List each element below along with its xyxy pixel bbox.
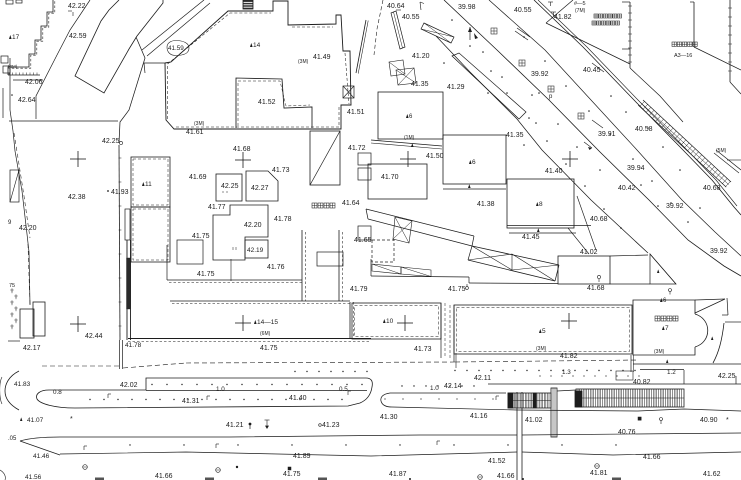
svg-text:42.20: 42.20 xyxy=(244,222,262,229)
svg-text:42.44: 42.44 xyxy=(85,333,103,340)
svg-text:0.8: 0.8 xyxy=(53,389,62,396)
svg-text:41.30: 41.30 xyxy=(380,414,398,421)
svg-text:40.64: 40.64 xyxy=(387,3,405,10)
svg-text:41.38: 41.38 xyxy=(477,201,495,208)
svg-text:42.11: 42.11 xyxy=(474,375,491,382)
svg-text:41.66: 41.66 xyxy=(643,454,661,461)
svg-text:*: * xyxy=(70,416,73,423)
svg-text:40.45: 40.45 xyxy=(583,67,601,74)
svg-text:41.07: 41.07 xyxy=(27,417,44,424)
svg-text:41.72: 41.72 xyxy=(348,145,366,152)
svg-text:41.65: 41.65 xyxy=(354,237,372,244)
svg-text:41.21: 41.21 xyxy=(226,422,244,429)
svg-text:42.27: 42.27 xyxy=(251,185,269,192)
svg-text:(3M): (3M) xyxy=(536,346,547,352)
svg-text:41.16: 41.16 xyxy=(470,413,488,420)
svg-text:41.51: 41.51 xyxy=(347,109,365,116)
svg-text:41.83: 41.83 xyxy=(14,381,31,388)
svg-text:42.17: 42.17 xyxy=(23,345,41,352)
svg-text:41.31: 41.31 xyxy=(182,398,200,405)
svg-text:40.58: 40.58 xyxy=(635,126,653,133)
svg-text:41.20: 41.20 xyxy=(412,53,430,60)
svg-text:41.75: 41.75 xyxy=(448,286,466,293)
svg-text:40.42: 40.42 xyxy=(618,185,636,192)
svg-text:40.82: 40.82 xyxy=(633,379,651,386)
svg-text:1.2: 1.2 xyxy=(667,369,676,376)
svg-text:41.35: 41.35 xyxy=(411,81,429,88)
svg-text:42.06: 42.06 xyxy=(25,79,43,86)
svg-text:1.0: 1.0 xyxy=(430,385,439,392)
svg-text:#—5: #—5 xyxy=(574,1,586,7)
svg-text:75: 75 xyxy=(9,283,15,289)
svg-text:*: * xyxy=(726,417,729,424)
svg-text:39.92: 39.92 xyxy=(710,248,728,255)
svg-text:40.68: 40.68 xyxy=(703,185,721,192)
svg-text:41.75: 41.75 xyxy=(260,345,278,352)
svg-text:41.02: 41.02 xyxy=(580,249,598,256)
svg-text:.05: .05 xyxy=(8,436,17,442)
svg-text:41.40: 41.40 xyxy=(289,395,307,402)
svg-text:41.62: 41.62 xyxy=(703,471,721,478)
svg-text:42.02: 42.02 xyxy=(120,382,138,389)
svg-text:41.82: 41.82 xyxy=(554,14,572,21)
svg-text:42.14: 42.14 xyxy=(444,383,462,390)
svg-text:5: 5 xyxy=(542,328,546,335)
svg-text:41.69: 41.69 xyxy=(189,174,207,181)
svg-text:41.89: 41.89 xyxy=(293,453,311,460)
svg-text:41.59: 41.59 xyxy=(168,45,184,52)
svg-text:41.66: 41.66 xyxy=(497,473,515,480)
svg-text:41.46: 41.46 xyxy=(33,453,50,460)
svg-text:42.19: 42.19 xyxy=(247,247,264,254)
svg-text:41.61: 41.61 xyxy=(186,129,204,136)
svg-text:42.20: 42.20 xyxy=(19,225,37,232)
svg-text:40.90: 40.90 xyxy=(700,417,718,424)
svg-text:(6M): (6M) xyxy=(260,331,271,337)
svg-text:41.73: 41.73 xyxy=(414,346,432,353)
svg-text:41.68: 41.68 xyxy=(233,146,251,153)
svg-text:41.82: 41.82 xyxy=(560,353,578,360)
svg-text:42.64: 42.64 xyxy=(18,97,36,104)
svg-text:41.70: 41.70 xyxy=(381,174,399,181)
svg-text:41.52: 41.52 xyxy=(488,458,506,465)
svg-text:40.76: 40.76 xyxy=(618,429,636,436)
svg-text:39.98: 39.98 xyxy=(458,4,476,11)
svg-text:41.40: 41.40 xyxy=(545,168,563,175)
svg-text:42.59: 42.59 xyxy=(69,33,87,40)
svg-text:14—15: 14—15 xyxy=(257,319,278,326)
svg-text:17: 17 xyxy=(12,34,20,41)
svg-text:1.0: 1.0 xyxy=(216,386,225,393)
svg-text:40.68: 40.68 xyxy=(590,216,608,223)
svg-text:42.25: 42.25 xyxy=(718,373,736,380)
svg-text:(1M): (1M) xyxy=(404,135,415,141)
svg-text:6: 6 xyxy=(472,159,476,166)
svg-text:41.68: 41.68 xyxy=(587,285,605,292)
svg-text:41.56: 41.56 xyxy=(25,474,42,480)
svg-text:7: 7 xyxy=(665,325,669,332)
svg-text:(3M): (3M) xyxy=(298,59,309,65)
svg-text:41.79: 41.79 xyxy=(350,286,368,293)
svg-text:42.22: 42.22 xyxy=(68,3,86,10)
svg-text:41.78: 41.78 xyxy=(125,342,142,349)
svg-text:41.75: 41.75 xyxy=(283,471,301,478)
svg-text:10: 10 xyxy=(386,318,394,325)
svg-text:11: 11 xyxy=(145,181,152,188)
svg-text:(4M): (4M) xyxy=(8,64,18,69)
svg-text:41.64: 41.64 xyxy=(342,200,360,207)
svg-text:(3M): (3M) xyxy=(194,121,205,127)
svg-text:41.66: 41.66 xyxy=(155,473,173,480)
svg-text:A3—16: A3—16 xyxy=(674,53,692,59)
svg-text:40.55: 40.55 xyxy=(514,7,532,14)
svg-text:41.81: 41.81 xyxy=(590,470,608,477)
svg-text:41.29: 41.29 xyxy=(447,84,465,91)
svg-text:39.92: 39.92 xyxy=(666,203,684,210)
svg-text:41.02: 41.02 xyxy=(525,417,543,424)
svg-text:(7M): (7M) xyxy=(575,8,586,14)
svg-text:41.45: 41.45 xyxy=(522,234,540,241)
svg-text:42.38: 42.38 xyxy=(68,194,86,201)
svg-text:42.25: 42.25 xyxy=(102,138,120,145)
svg-text:39.91: 39.91 xyxy=(598,131,616,138)
svg-text:39.92: 39.92 xyxy=(531,71,549,78)
svg-text:41.93: 41.93 xyxy=(111,189,129,196)
svg-text:41.87: 41.87 xyxy=(389,471,407,478)
svg-text:14: 14 xyxy=(253,42,261,49)
svg-text:41.78: 41.78 xyxy=(274,216,292,223)
svg-text:41.23: 41.23 xyxy=(322,422,340,429)
svg-text:39.94: 39.94 xyxy=(627,165,645,172)
svg-text:41.76: 41.76 xyxy=(267,264,285,271)
svg-text:41.75: 41.75 xyxy=(197,271,215,278)
svg-text:(3M): (3M) xyxy=(654,349,665,355)
svg-text:0.5: 0.5 xyxy=(339,386,348,393)
svg-text:42.25: 42.25 xyxy=(221,183,239,190)
svg-text:40.55: 40.55 xyxy=(402,14,420,21)
svg-text:41.73: 41.73 xyxy=(272,167,290,174)
svg-text:41.49: 41.49 xyxy=(313,54,331,61)
svg-text:41.35: 41.35 xyxy=(506,132,524,139)
svg-text:8: 8 xyxy=(539,201,543,208)
svg-text:41.52: 41.52 xyxy=(258,99,276,106)
svg-text:41.75: 41.75 xyxy=(192,233,210,240)
svg-text:41.77: 41.77 xyxy=(208,204,226,211)
svg-text:41.50: 41.50 xyxy=(426,153,444,160)
svg-text:1.3: 1.3 xyxy=(562,369,571,376)
